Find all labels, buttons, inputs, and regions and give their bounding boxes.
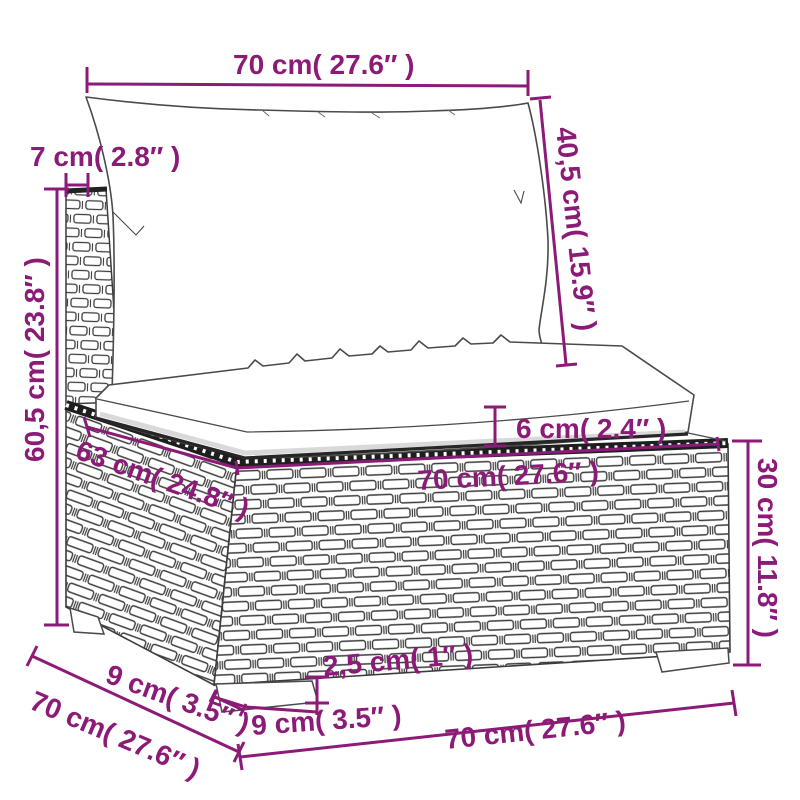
svg-text:60,5 cm( 23.8″ ): 60,5 cm( 23.8″ )	[19, 257, 50, 462]
svg-text:30 cm( 11.8″ ): 30 cm( 11.8″ )	[752, 458, 783, 638]
svg-text:70 cm( 27.6″ ): 70 cm( 27.6″ )	[233, 49, 415, 80]
svg-text:7 cm( 2.8″ ): 7 cm( 2.8″ )	[30, 141, 180, 172]
svg-text:6 cm( 2.4″ ): 6 cm( 2.4″ )	[516, 413, 666, 444]
